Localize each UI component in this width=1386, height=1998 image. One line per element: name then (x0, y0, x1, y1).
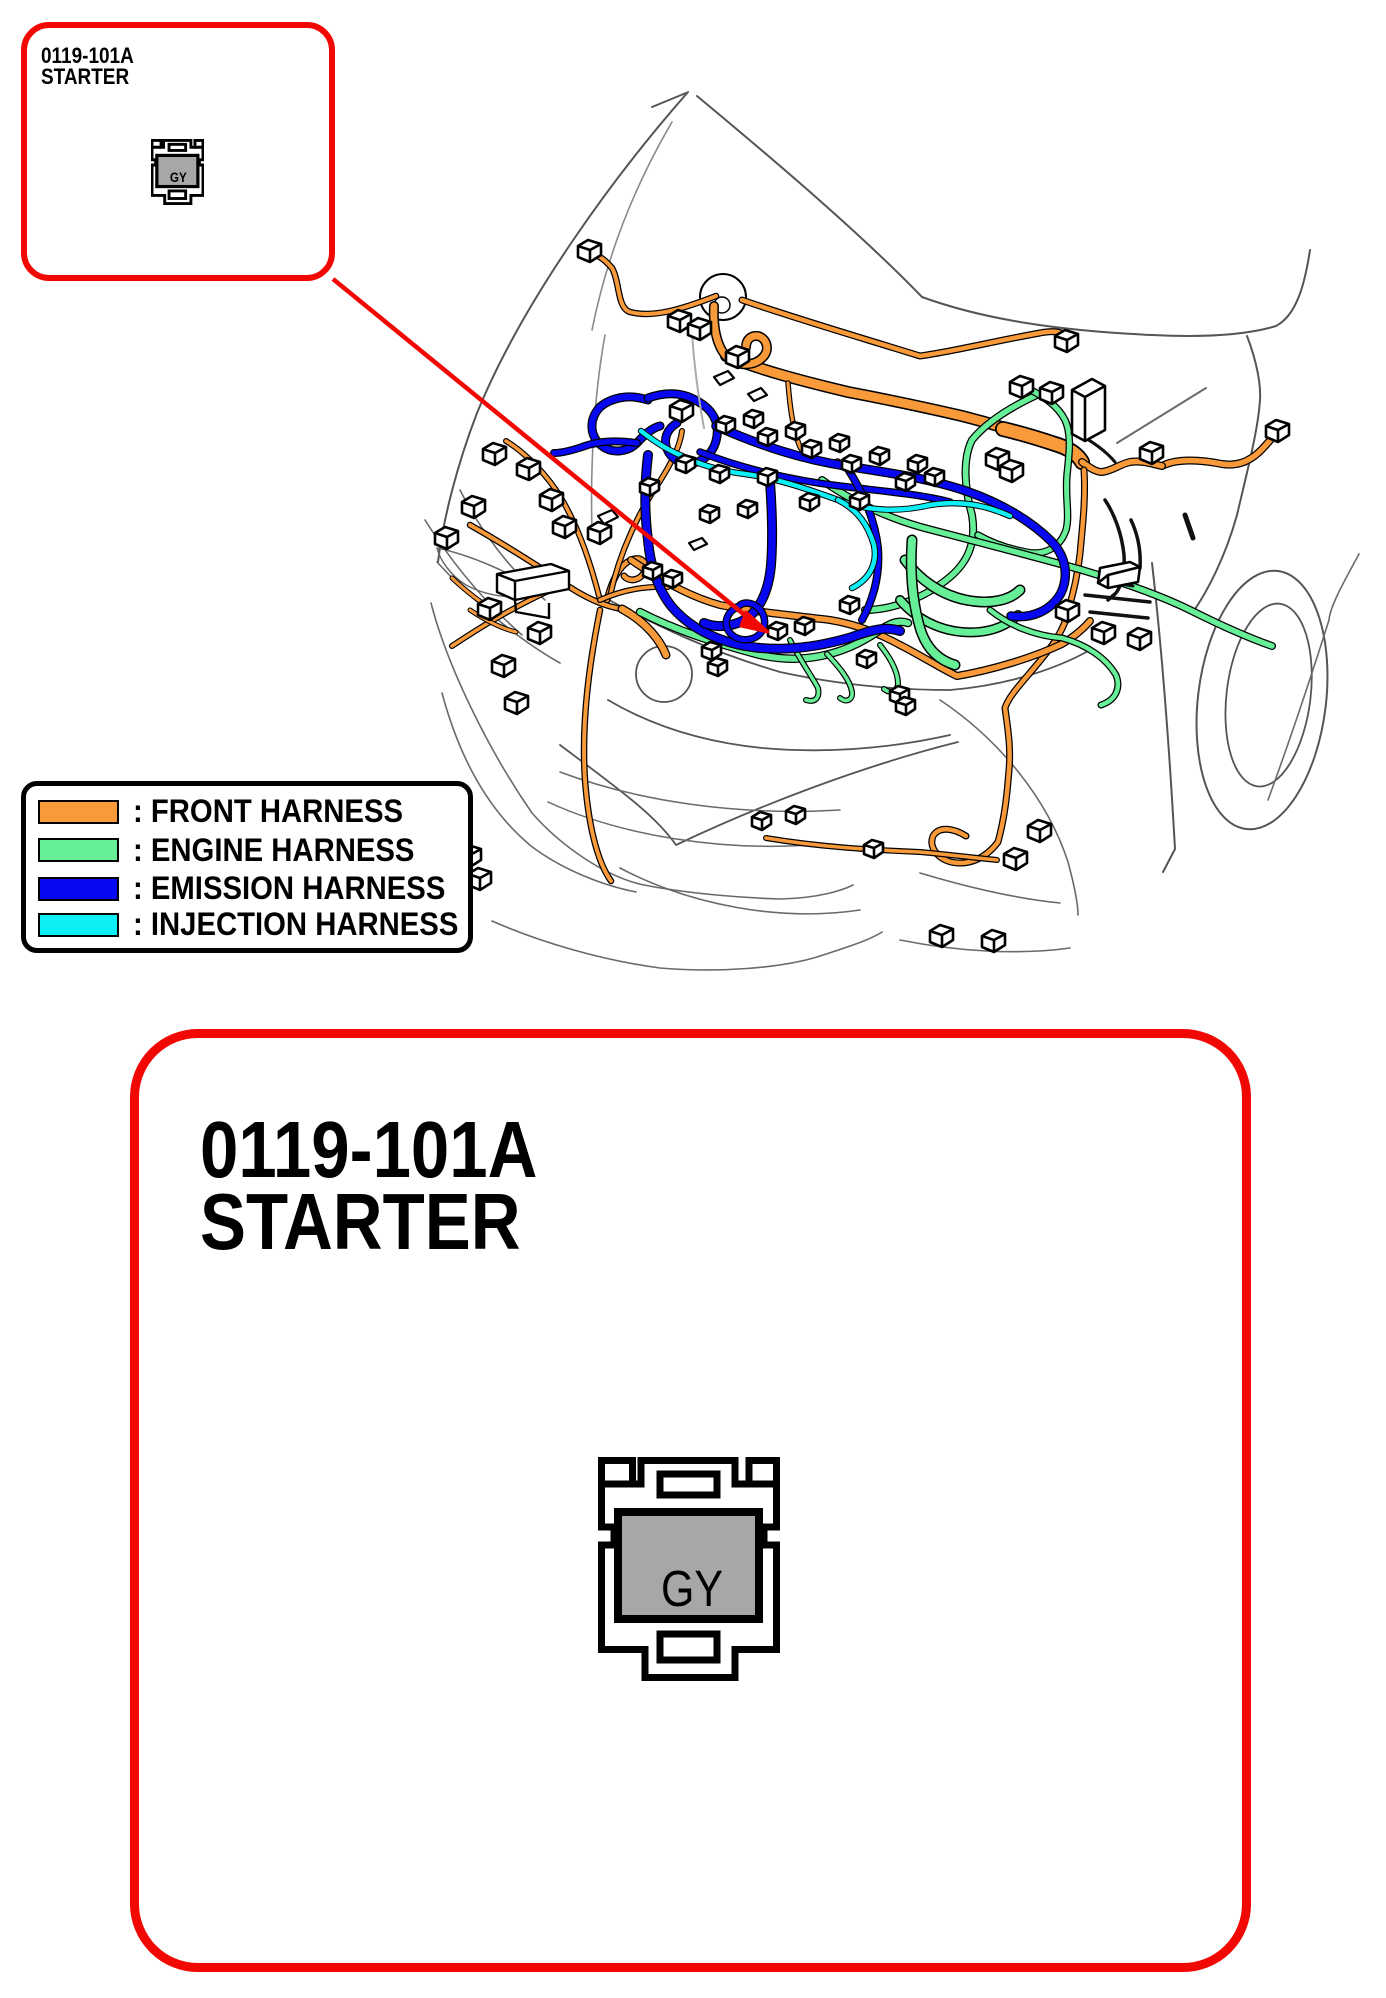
svg-text:GY: GY (661, 1560, 723, 1617)
svg-text:GY: GY (170, 170, 187, 185)
